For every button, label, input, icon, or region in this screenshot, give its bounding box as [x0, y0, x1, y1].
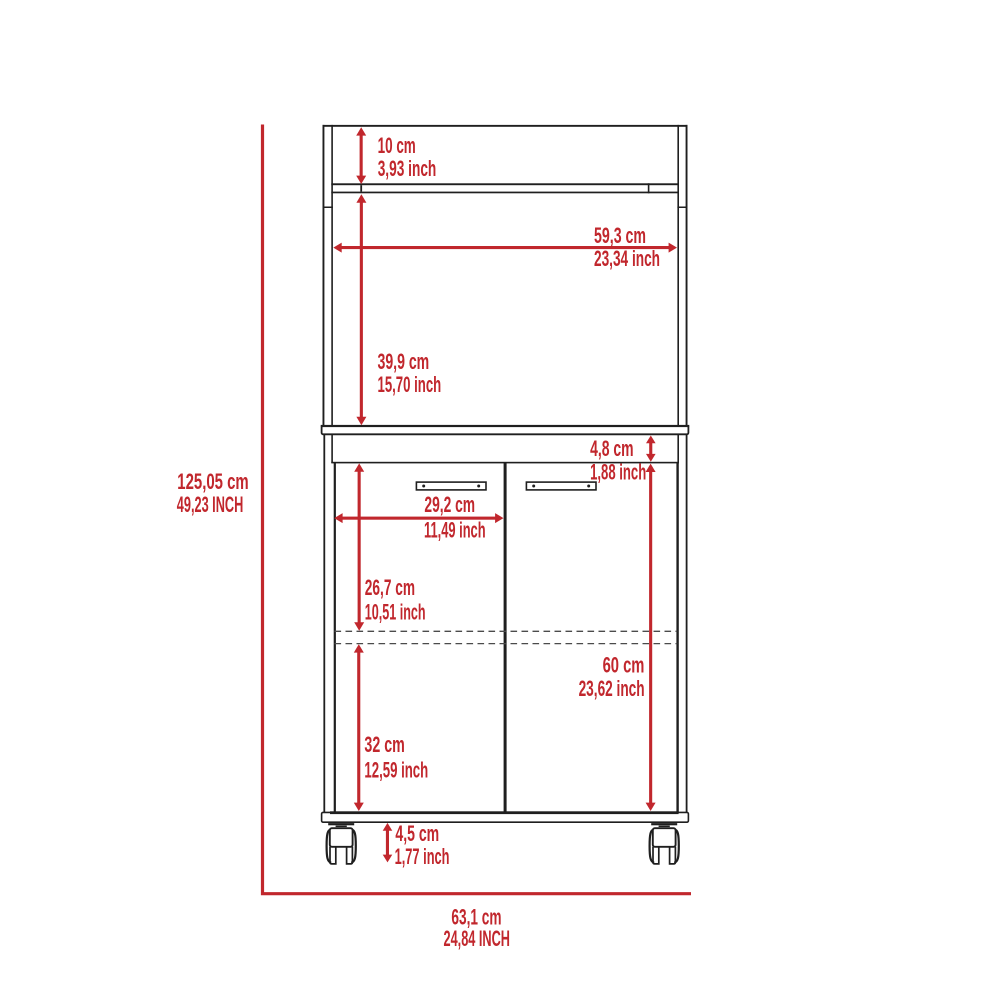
svg-text:59,3 cm: 59,3 cm	[594, 223, 646, 248]
svg-text:4,8 cm: 4,8 cm	[590, 436, 634, 461]
svg-text:24,84 INCH: 24,84 INCH	[444, 926, 511, 951]
svg-text:49,23 INCH: 49,23 INCH	[177, 492, 244, 517]
svg-text:3,93 inch: 3,93 inch	[378, 156, 437, 181]
svg-text:39,9 cm: 39,9 cm	[378, 349, 430, 374]
svg-text:23,62 inch: 23,62 inch	[579, 676, 645, 701]
svg-text:10 cm: 10 cm	[378, 133, 416, 158]
svg-text:1,77 inch: 1,77 inch	[395, 844, 450, 869]
svg-text:26,7 cm: 26,7 cm	[365, 575, 415, 600]
svg-text:12,59 inch: 12,59 inch	[364, 758, 428, 783]
svg-text:29,2 cm: 29,2 cm	[424, 492, 475, 517]
svg-text:11,49 inch: 11,49 inch	[424, 517, 486, 542]
svg-text:60 cm: 60 cm	[603, 652, 645, 677]
svg-text:1,88 inch: 1,88 inch	[590, 460, 646, 485]
svg-text:15,70 inch: 15,70 inch	[378, 372, 442, 397]
svg-text:125,05 cm: 125,05 cm	[177, 469, 248, 494]
svg-text:10,51 inch: 10,51 inch	[365, 599, 426, 624]
svg-text:23,34 inch: 23,34 inch	[594, 246, 660, 271]
svg-text:32 cm: 32 cm	[364, 732, 404, 757]
svg-text:4,5 cm: 4,5 cm	[395, 821, 439, 846]
